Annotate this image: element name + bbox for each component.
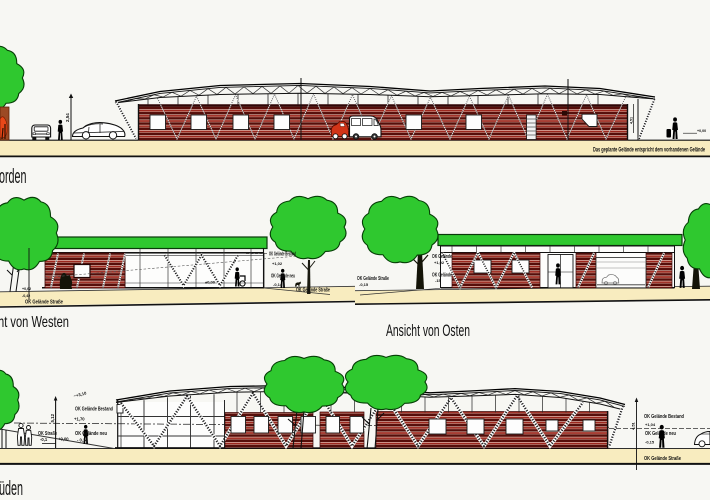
svg-text:-0,14: -0,14	[273, 282, 283, 287]
svg-text:±0,00: ±0,00	[205, 280, 216, 285]
svg-text:-0,1: -0,1	[40, 437, 48, 442]
svg-text:+1,02: +1,02	[272, 261, 283, 266]
svg-text:OK Gelände Straße: OK Gelände Straße	[296, 288, 330, 294]
svg-text:+0,62: +0,62	[22, 287, 31, 291]
svg-text:5,12: 5,12	[50, 413, 55, 422]
svg-text:OK Gelände Bestand: OK Gelände Bestand	[269, 252, 296, 258]
svg-text:OK Gelände Straße: OK Gelände Straße	[644, 456, 681, 462]
svg-text:OK Gelände neu: OK Gelände neu	[271, 274, 295, 280]
svg-text:+1,02: +1,02	[434, 260, 445, 265]
svg-text:4,51: 4,51	[629, 117, 633, 124]
svg-text:+1,04: +1,04	[645, 422, 656, 427]
svg-text:-0,42: -0,42	[22, 294, 30, 298]
svg-text:+0,00: +0,00	[697, 129, 706, 133]
svg-text:OK Gelände Bestand: OK Gelände Bestand	[75, 407, 113, 413]
svg-text:Ansicht von Osten: Ansicht von Osten	[386, 322, 470, 340]
svg-text:2,54: 2,54	[65, 113, 70, 122]
svg-text:+1,70: +1,70	[74, 417, 85, 422]
svg-text:-0,15: -0,15	[645, 440, 655, 445]
svg-text:-0,15: -0,15	[359, 282, 369, 287]
svg-text:OK Gelände neu: OK Gelände neu	[75, 431, 107, 437]
svg-text:+0,00: +0,00	[58, 437, 69, 442]
svg-text:orden: orden	[0, 166, 27, 188]
svg-text:Das geplante Gelände entsprich: Das geplante Gelände entspricht dem vorh…	[593, 147, 705, 154]
svg-text:OK Gelände Bestand: OK Gelände Bestand	[644, 414, 684, 420]
svg-text:üden: üden	[0, 478, 23, 500]
svg-text:OK Gelände Straße: OK Gelände Straße	[25, 300, 63, 306]
svg-text:- 0,14: - 0,14	[77, 438, 88, 443]
svg-text:-15: -15	[435, 278, 442, 283]
svg-text:ht von Westen: ht von Westen	[0, 314, 69, 331]
